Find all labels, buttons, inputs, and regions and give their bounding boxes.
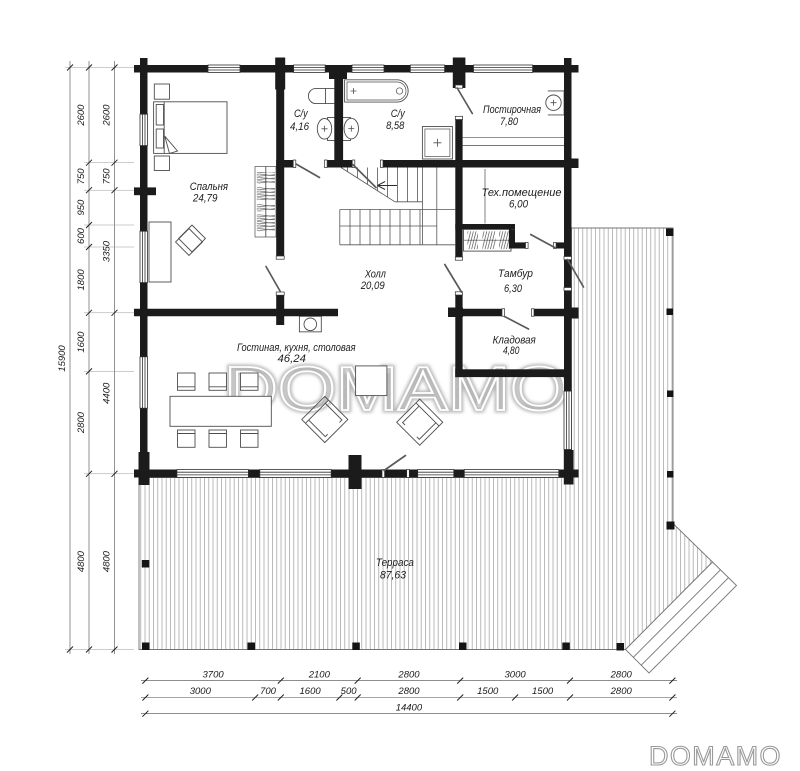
svg-text:Постирочная: Постирочная bbox=[483, 104, 541, 116]
svg-text:750: 750 bbox=[76, 168, 87, 185]
svg-text:4400: 4400 bbox=[102, 382, 113, 404]
svg-text:2800: 2800 bbox=[397, 686, 420, 697]
svg-text:20,09: 20,09 bbox=[360, 280, 385, 292]
svg-text:1800: 1800 bbox=[76, 269, 87, 291]
svg-text:4,80: 4,80 bbox=[503, 345, 519, 357]
svg-text:1600: 1600 bbox=[76, 331, 87, 353]
svg-text:С/у: С/у bbox=[391, 108, 406, 120]
svg-text:2800: 2800 bbox=[610, 686, 633, 697]
svg-text:2600: 2600 bbox=[76, 104, 87, 127]
svg-text:2100: 2100 bbox=[308, 669, 331, 680]
svg-text:15900: 15900 bbox=[57, 345, 68, 372]
svg-text:6,00: 6,00 bbox=[509, 199, 528, 211]
svg-text:4800: 4800 bbox=[76, 550, 87, 572]
svg-text:Спальня: Спальня bbox=[190, 181, 228, 193]
svg-text:Терраса: Терраса bbox=[376, 557, 414, 569]
svg-text:4,16: 4,16 bbox=[290, 121, 309, 133]
svg-text:1600: 1600 bbox=[300, 686, 322, 697]
svg-text:14400: 14400 bbox=[396, 702, 423, 713]
svg-text:3000: 3000 bbox=[505, 669, 527, 680]
svg-text:Тех.помещение: Тех.помещение bbox=[482, 187, 562, 199]
svg-text:500: 500 bbox=[341, 686, 358, 697]
svg-text:DOMAMO: DOMAMO bbox=[224, 355, 568, 424]
svg-text:2800: 2800 bbox=[397, 669, 420, 680]
svg-text:700: 700 bbox=[260, 686, 277, 697]
svg-text:1500: 1500 bbox=[477, 686, 499, 697]
svg-text:3350: 3350 bbox=[102, 240, 113, 262]
svg-text:87,63: 87,63 bbox=[380, 570, 406, 582]
svg-text:С/у: С/у bbox=[294, 108, 308, 120]
svg-text:950: 950 bbox=[76, 199, 87, 216]
svg-text:6,30: 6,30 bbox=[504, 283, 522, 295]
svg-text:750: 750 bbox=[102, 168, 113, 185]
svg-text:Тамбур: Тамбур bbox=[498, 268, 533, 280]
svg-text:7,80: 7,80 bbox=[500, 116, 518, 128]
svg-text:24,79: 24,79 bbox=[192, 192, 218, 204]
svg-text:DOMAMO: DOMAMO bbox=[649, 741, 782, 771]
svg-text:Холл: Холл bbox=[364, 268, 386, 280]
svg-text:600: 600 bbox=[76, 227, 87, 244]
svg-text:46,24: 46,24 bbox=[278, 353, 306, 365]
svg-text:8,58: 8,58 bbox=[386, 120, 404, 132]
svg-text:3700: 3700 bbox=[203, 669, 225, 680]
svg-text:2600: 2600 bbox=[102, 104, 113, 127]
svg-text:1500: 1500 bbox=[532, 686, 554, 697]
svg-text:2800: 2800 bbox=[76, 411, 87, 434]
svg-text:4800: 4800 bbox=[102, 550, 113, 572]
svg-text:2800: 2800 bbox=[610, 669, 633, 680]
svg-text:3000: 3000 bbox=[190, 686, 212, 697]
